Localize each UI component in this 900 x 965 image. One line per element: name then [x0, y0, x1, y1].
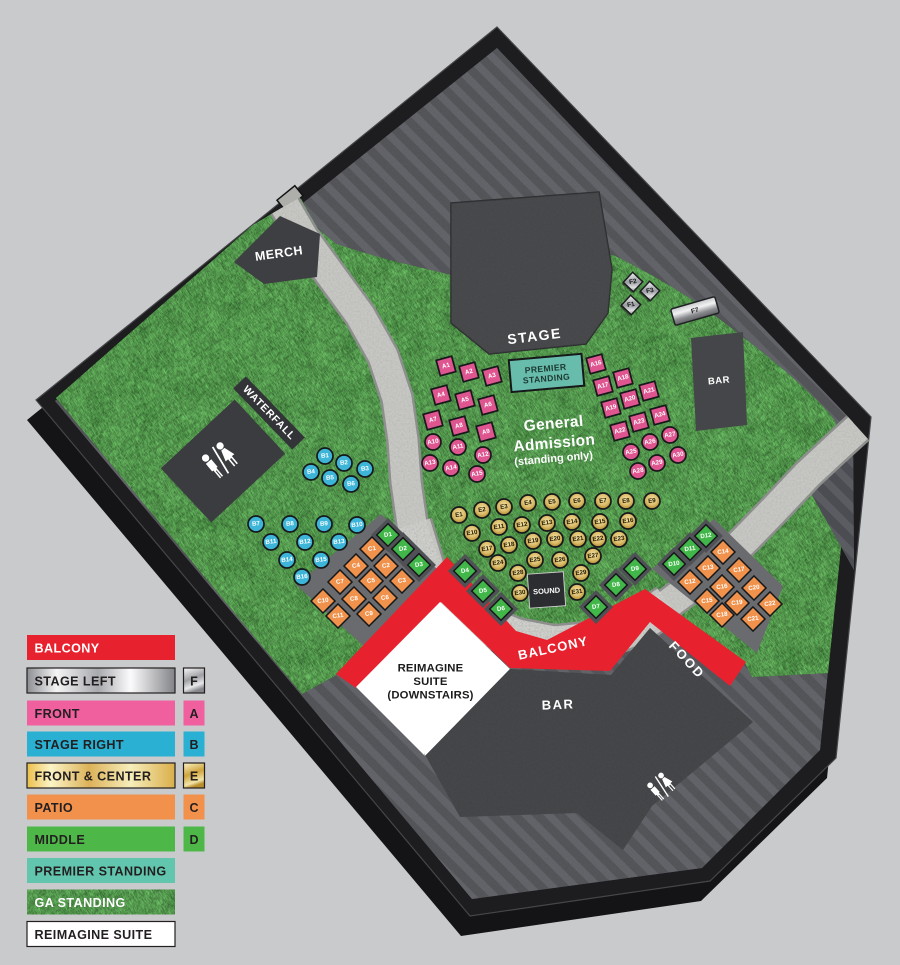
- svg-text:FRONT: FRONT: [35, 707, 80, 721]
- svg-text:E: E: [190, 770, 198, 784]
- svg-text:C6: C6: [381, 594, 390, 602]
- svg-text:B4: B4: [307, 468, 316, 476]
- svg-text:(DOWNSTAIRS): (DOWNSTAIRS): [387, 690, 473, 702]
- svg-text:D8: D8: [612, 581, 621, 589]
- svg-text:B10: B10: [351, 521, 364, 529]
- svg-text:F: F: [190, 675, 198, 689]
- svg-text:BALCONY: BALCONY: [35, 642, 100, 656]
- svg-text:E2: E2: [478, 506, 487, 514]
- svg-text:C7: C7: [336, 578, 345, 586]
- svg-text:STAGE LEFT: STAGE LEFT: [35, 675, 116, 689]
- svg-text:C8: C8: [350, 595, 359, 603]
- svg-text:B12: B12: [299, 538, 312, 546]
- svg-text:B11: B11: [265, 538, 277, 546]
- svg-text:BAR: BAR: [708, 375, 731, 388]
- svg-text:D1: D1: [384, 531, 393, 539]
- svg-text:D5: D5: [479, 587, 488, 595]
- svg-text:E3: E3: [500, 503, 509, 511]
- svg-text:STAGE RIGHT: STAGE RIGHT: [35, 738, 125, 752]
- svg-text:C1: C1: [368, 545, 377, 553]
- svg-text:REIMAGINE: REIMAGINE: [398, 663, 464, 675]
- svg-text:B9: B9: [320, 520, 329, 528]
- svg-text:C9: C9: [365, 610, 374, 618]
- svg-text:PREMIER STANDING: PREMIER STANDING: [35, 865, 167, 879]
- svg-text:C4: C4: [352, 562, 361, 570]
- svg-text:B2: B2: [340, 459, 349, 467]
- svg-text:E5: E5: [548, 498, 557, 506]
- svg-text:B5: B5: [326, 474, 335, 482]
- svg-text:D: D: [189, 833, 198, 847]
- svg-text:BAR: BAR: [541, 696, 574, 712]
- svg-text:FRONT & CENTER: FRONT & CENTER: [35, 770, 152, 784]
- svg-text:A: A: [189, 707, 198, 721]
- svg-text:C: C: [189, 801, 198, 815]
- svg-text:E4: E4: [524, 499, 533, 507]
- svg-text:E8: E8: [622, 497, 631, 505]
- svg-text:REIMAGINE SUITE: REIMAGINE SUITE: [35, 928, 153, 942]
- svg-text:E1: E1: [455, 511, 464, 519]
- svg-text:GA STANDING: GA STANDING: [35, 896, 126, 910]
- svg-text:B1: B1: [321, 452, 330, 460]
- svg-text:B14: B14: [281, 556, 294, 564]
- svg-text:D4: D4: [461, 567, 470, 575]
- svg-text:D7: D7: [592, 603, 601, 611]
- svg-text:D9: D9: [631, 565, 640, 573]
- svg-text:C2: C2: [382, 562, 391, 570]
- svg-text:B13: B13: [333, 538, 346, 546]
- svg-text:C3: C3: [398, 577, 407, 585]
- svg-text:B8: B8: [286, 520, 295, 528]
- svg-text:B6: B6: [347, 480, 356, 488]
- svg-text:D2: D2: [399, 545, 408, 553]
- svg-text:SOUND: SOUND: [533, 585, 561, 596]
- svg-text:B16: B16: [296, 573, 309, 581]
- svg-text:B7: B7: [252, 520, 261, 528]
- svg-text:E9: E9: [648, 497, 657, 505]
- svg-text:E6: E6: [573, 497, 582, 505]
- svg-text:SUITE: SUITE: [413, 676, 448, 688]
- svg-text:MIDDLE: MIDDLE: [35, 833, 86, 847]
- svg-text:C5: C5: [367, 577, 376, 585]
- svg-text:B: B: [189, 738, 198, 752]
- svg-text:B3: B3: [361, 465, 370, 473]
- svg-text:PATIO: PATIO: [35, 801, 74, 815]
- svg-text:D6: D6: [497, 605, 506, 613]
- svg-text:B15: B15: [315, 556, 328, 564]
- svg-text:E7: E7: [599, 497, 608, 505]
- svg-text:D3: D3: [415, 561, 424, 569]
